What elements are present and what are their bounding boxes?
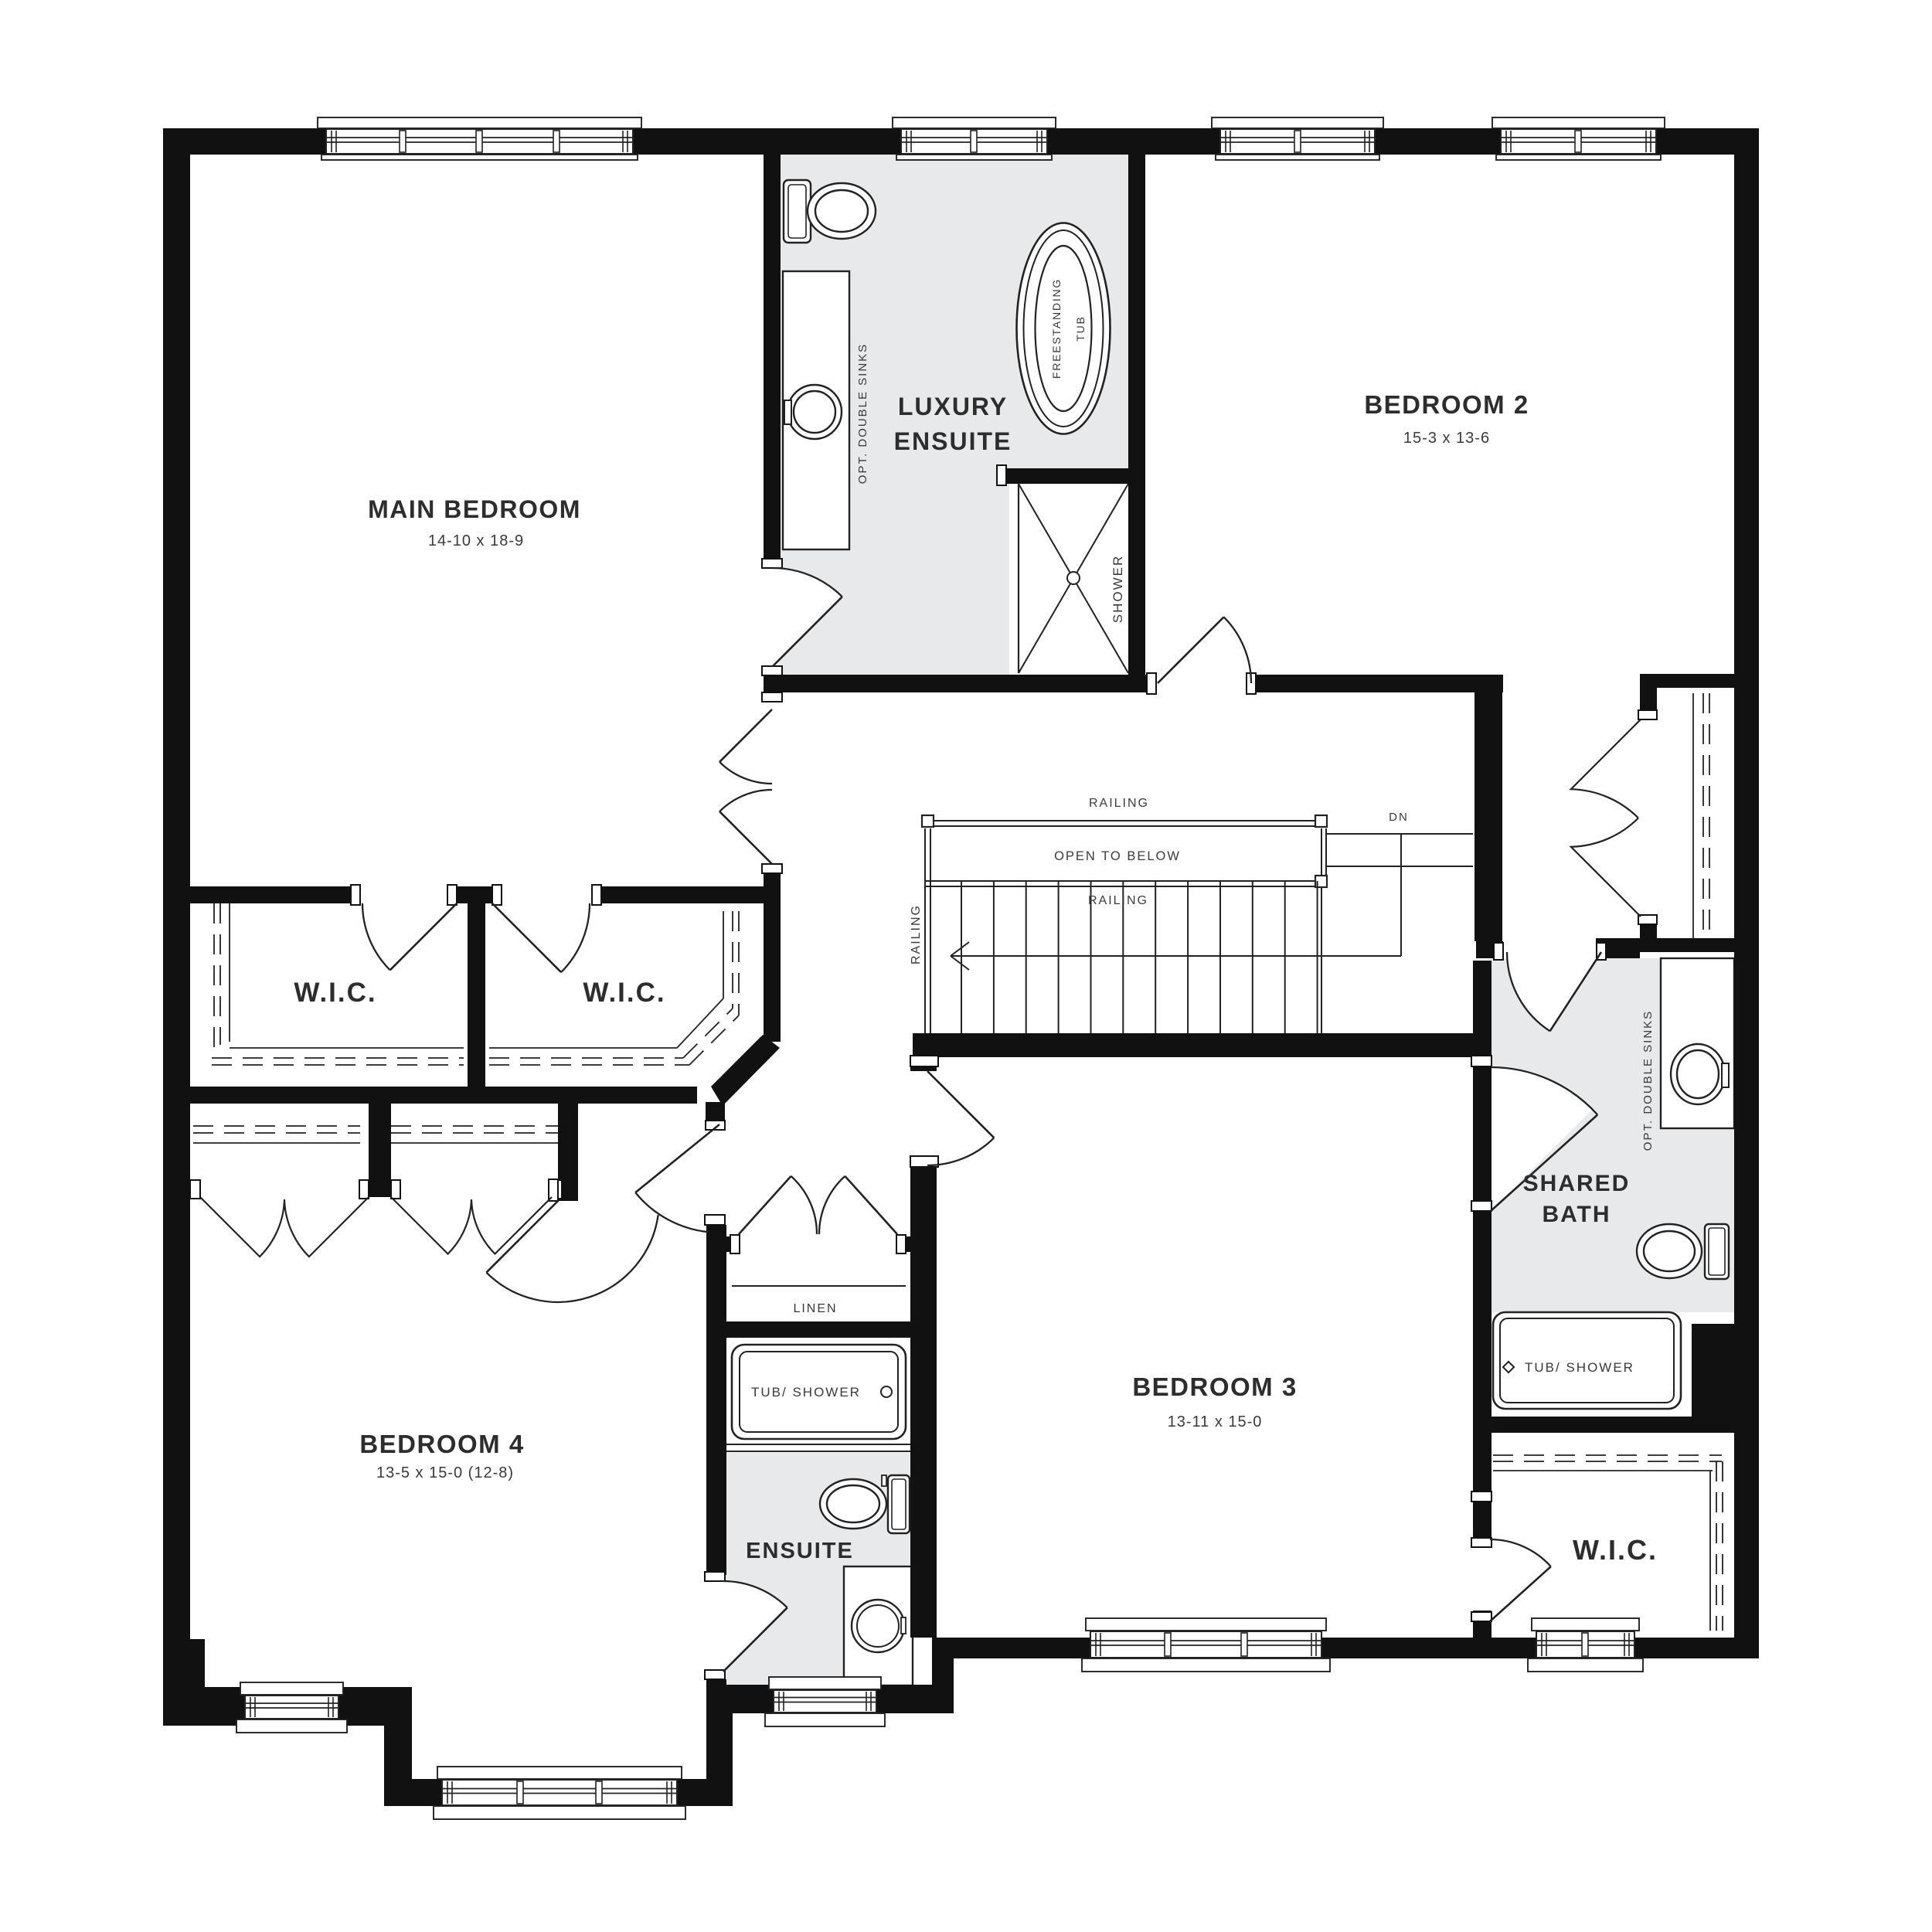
svg-text:OPEN TO BELOW: OPEN TO BELOW: [1054, 849, 1181, 863]
svg-text:TUB/ SHOWER: TUB/ SHOWER: [1525, 1360, 1634, 1375]
svg-text:TUB: TUB: [1074, 315, 1087, 341]
svg-text:TUB/ SHOWER: TUB/ SHOWER: [751, 1385, 861, 1400]
svg-text:BEDROOM 3: BEDROOM 3: [1132, 1372, 1297, 1401]
svg-text:13-5 x 15-0 (12-8): 13-5 x 15-0 (12-8): [376, 1464, 514, 1481]
svg-text:RAILING: RAILING: [1088, 894, 1148, 907]
svg-text:LINEN: LINEN: [793, 1302, 837, 1315]
svg-text:14-10 x 18-9: 14-10 x 18-9: [428, 532, 524, 549]
svg-text:RAILING: RAILING: [910, 904, 923, 964]
svg-text:SHARED: SHARED: [1523, 1171, 1631, 1196]
svg-text:BEDROOM 2: BEDROOM 2: [1364, 390, 1529, 419]
svg-text:ENSUITE: ENSUITE: [894, 427, 1012, 455]
svg-text:BATH: BATH: [1542, 1202, 1611, 1227]
svg-text:DN: DN: [1389, 811, 1409, 824]
svg-text:FREESTANDING: FREESTANDING: [1050, 278, 1063, 379]
svg-text:LUXURY: LUXURY: [898, 393, 1008, 420]
svg-text:W.I.C.: W.I.C.: [583, 978, 665, 1008]
svg-text:W.I.C.: W.I.C.: [1573, 1534, 1658, 1566]
svg-text:BEDROOM 4: BEDROOM 4: [359, 1430, 524, 1458]
svg-text:OPT. DOUBLE SINKS: OPT. DOUBLE SINKS: [856, 343, 869, 484]
svg-text:13-11 x 15-0: 13-11 x 15-0: [1168, 1413, 1263, 1430]
svg-text:W.I.C.: W.I.C.: [294, 978, 376, 1008]
svg-text:SHOWER: SHOWER: [1111, 555, 1125, 624]
svg-text:15-3 x 13-6: 15-3 x 13-6: [1403, 430, 1490, 447]
svg-text:MAIN BEDROOM: MAIN BEDROOM: [368, 495, 581, 523]
svg-text:OPT. DOUBLE SINKS: OPT. DOUBLE SINKS: [1641, 1010, 1655, 1151]
svg-text:ENSUITE: ENSUITE: [746, 1539, 854, 1563]
svg-text:RAILING: RAILING: [1089, 797, 1149, 810]
